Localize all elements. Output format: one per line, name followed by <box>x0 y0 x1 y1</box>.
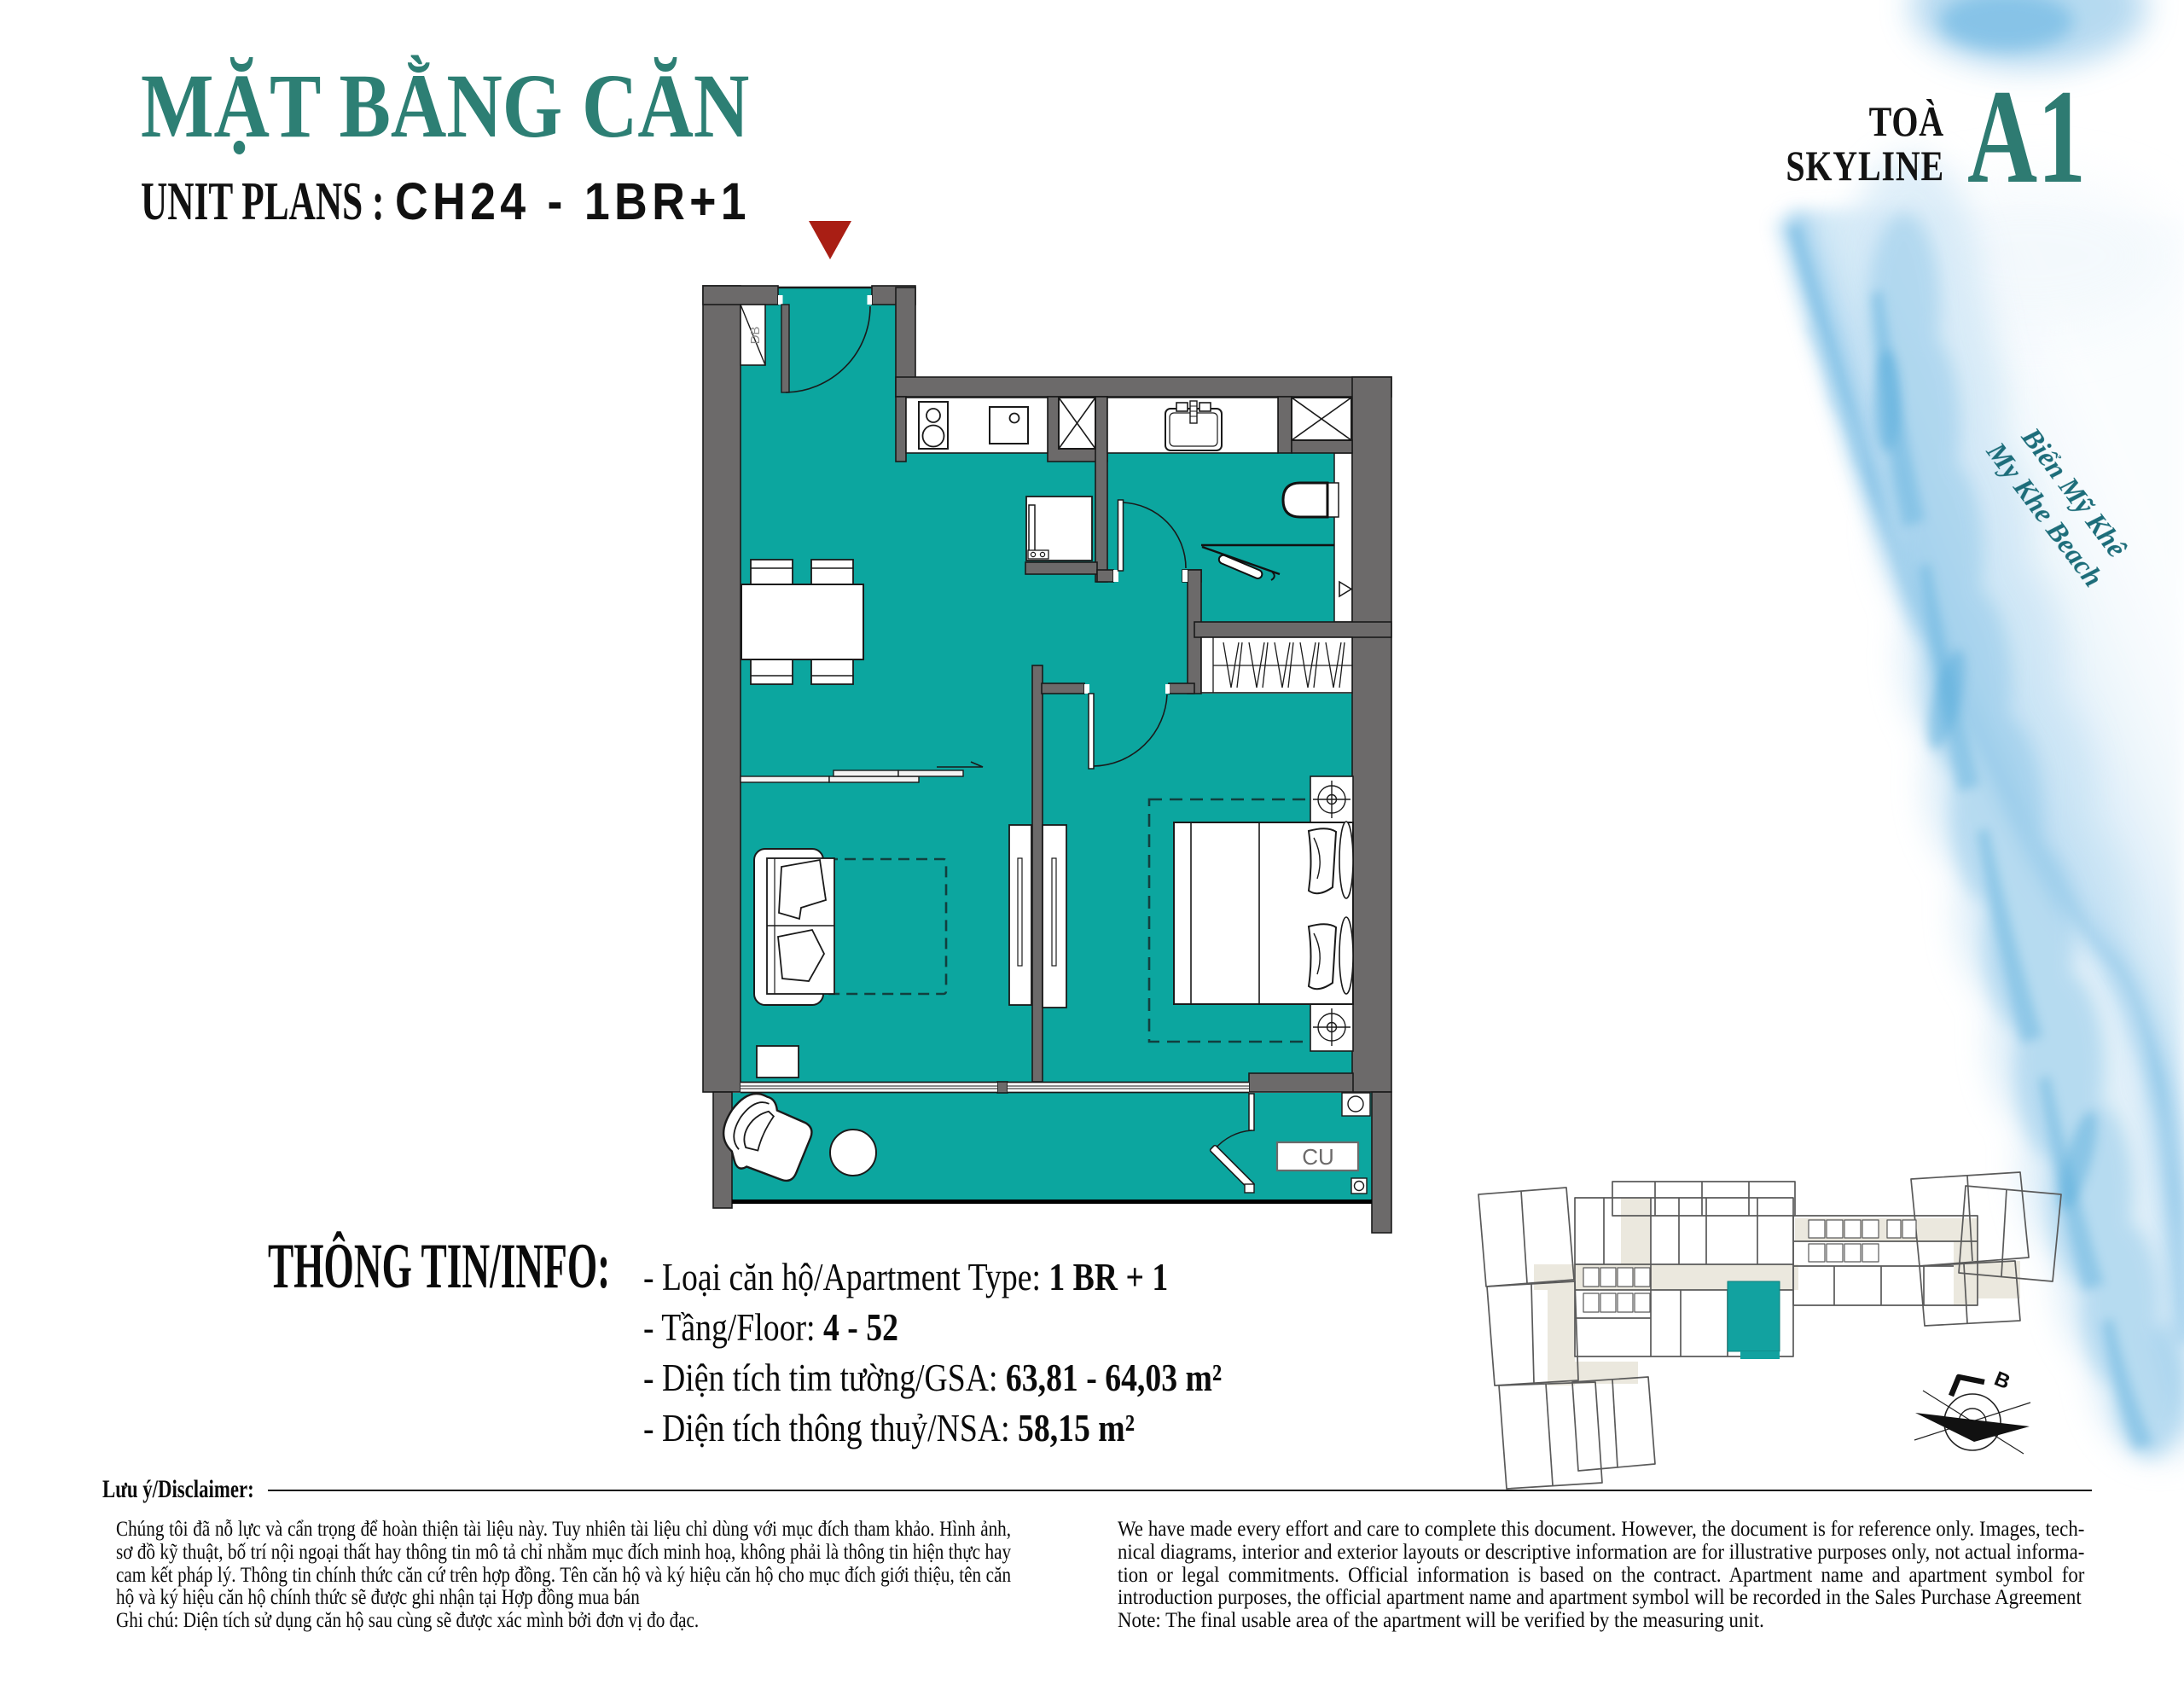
svg-text:B: B <box>1991 1368 2013 1395</box>
svg-text:CU: CU <box>1302 1144 1334 1170</box>
svg-text:DB: DB <box>748 327 763 345</box>
